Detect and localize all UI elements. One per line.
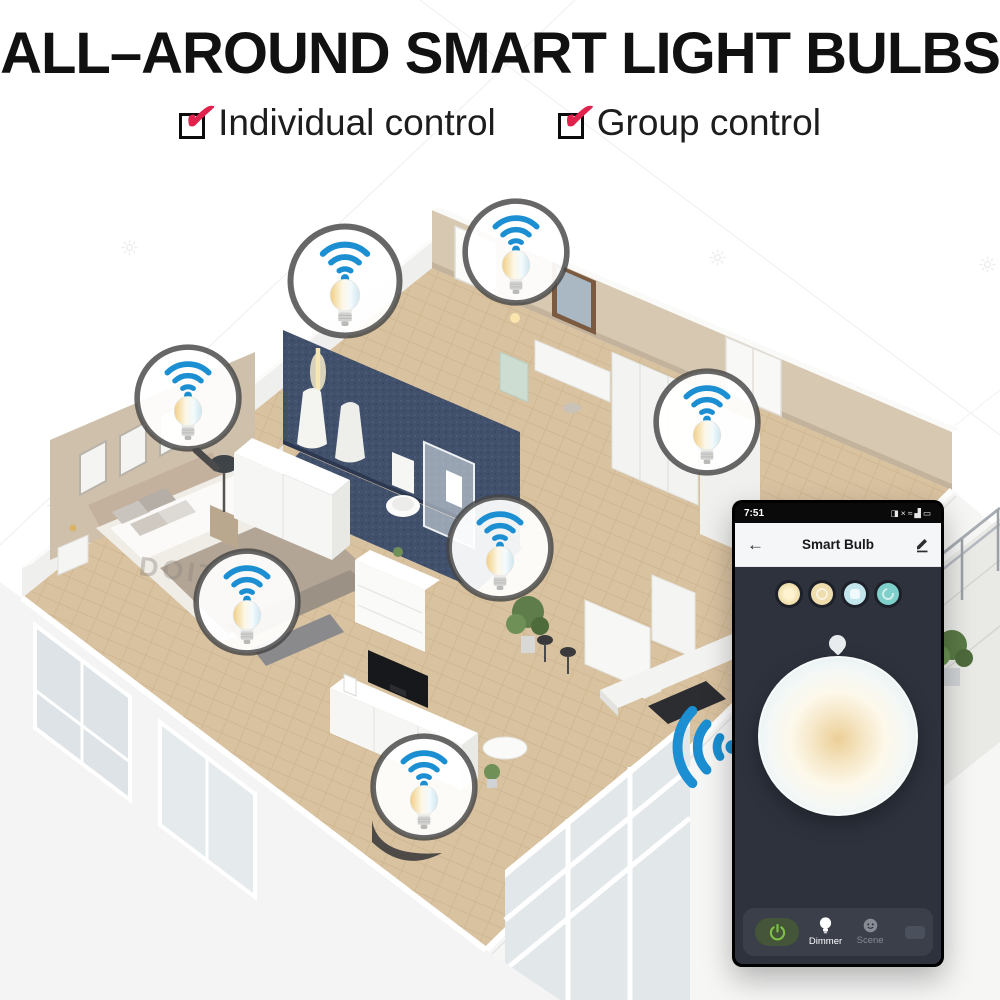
coffee-table [483,737,527,759]
battery-icon: ▭ [923,508,932,519]
tab-ghost [896,926,933,939]
tab-label: Scene [857,935,884,946]
bottom-toolbar: Dimmer Scene [743,908,933,956]
smart-bulb-callout-hallway [449,497,551,599]
mute-icon: × [901,508,907,519]
checkbox-label: Group control [597,102,821,144]
app-title: Smart Bulb [735,537,941,552]
page-title: ALL–AROUND SMART LIGHT BULBS [0,20,1000,87]
tab-dimmer[interactable]: Dimmer [807,917,844,947]
checkbox-individual-control: ✔ Individual control [179,102,496,144]
smart-bulb-callout-living-room [373,736,475,838]
status-time: 7:51 [744,508,764,519]
white-presets-row [735,583,941,605]
phone-screen: 7:51 ◨ × ≈ ▟ ▭ ← Smart Bulb [735,503,941,964]
dimmer-knob[interactable] [829,635,846,652]
power-icon [768,923,787,942]
preset-cool-button[interactable] [844,583,866,605]
preset-soft-warm-button[interactable] [811,583,833,605]
back-button[interactable]: ← [747,535,764,555]
signal-icon: ▟ [914,508,922,519]
bulb-glow-preview[interactable] [758,656,918,816]
product-banner: ALL–AROUND SMART LIGHT BULBS ✔ Individua… [0,0,1000,1000]
smart-bulb-callout-bathroom-pendant [291,227,400,336]
preset-teal-button[interactable] [877,583,899,605]
pencil-icon [914,536,930,553]
vibrate-icon: ≈ [908,508,914,519]
status-icons: ◨ × ≈ ▟ ▭ [891,508,932,519]
checkmark-icon: ✔ [182,99,212,135]
bulb-icon [819,917,832,934]
screenshot-icon: ◨ [891,508,900,519]
checkmark-icon: ✔ [561,99,591,135]
edit-button[interactable] [914,536,930,553]
preset-warm-button[interactable] [778,583,800,605]
feature-checklist: ✔ Individual control ✔ Group control [0,102,1000,144]
power-button[interactable] [755,918,799,946]
tab-scene[interactable]: Scene [852,918,889,946]
checkbox-icon: ✔ [558,113,584,139]
scene-icon [863,918,878,933]
checkbox-group-control: ✔ Group control [558,102,821,144]
smart-bulb-callout-bedroom-wall [137,347,239,449]
smart-bulb-callout-wardrobe-hall [656,371,758,473]
tab-label: Dimmer [809,936,842,947]
ghost-icon [905,926,925,939]
checkbox-label: Individual control [218,102,496,144]
smart-bulb-callout-bathroom-vanity [465,201,567,303]
app-nav-bar: ← Smart Bulb [735,523,941,567]
smart-bulb-callout-bedside [196,551,298,653]
phone-status-bar: 7:51 ◨ × ≈ ▟ ▭ [735,503,941,523]
dimmer-screen: Dimmer Scene [735,567,941,964]
checkbox-icon: ✔ [179,113,205,139]
smartphone-app-screenshot: 7:51 ◨ × ≈ ▟ ▭ ← Smart Bulb [732,500,944,967]
